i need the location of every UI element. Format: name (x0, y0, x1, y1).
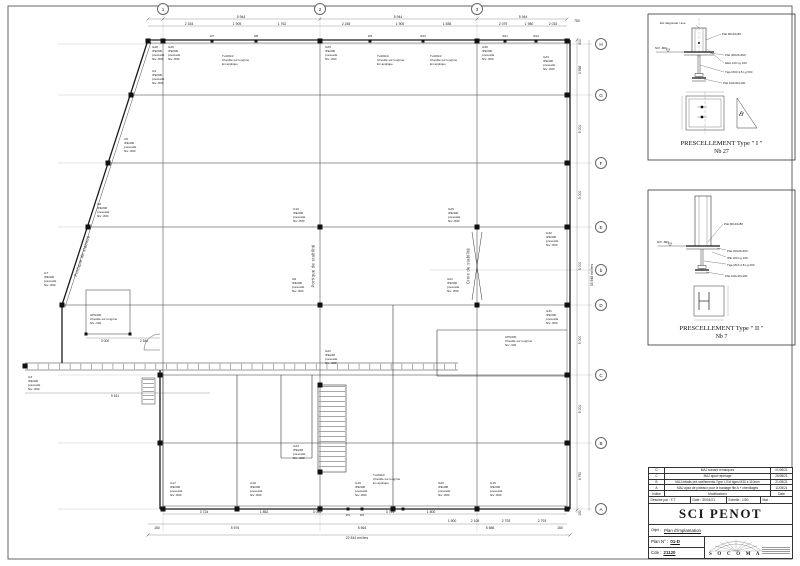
titleblock-bottom: Plan N° :01-D Cde :21120 S O C O M A (649, 537, 792, 558)
revision-table: D MAJ suivant remarques 01/06/21 C MAJ a… (649, 468, 792, 491)
revision-date: 26/05/21 (770, 474, 792, 479)
revision-index: D (649, 468, 665, 473)
socoma-logo: S O C O M A (705, 537, 792, 558)
detail-type1-drawing (648, 14, 795, 160)
detail1-count: Nb 27 (650, 149, 793, 155)
dimension-lines (25, 19, 589, 535)
revision-date: 01/06/21 (770, 468, 792, 473)
object-label: Objet : (651, 528, 661, 532)
drawn-by: Dessiné par : F.T (649, 497, 691, 503)
drawing-material: Mat : . (761, 497, 792, 503)
stairs-outline (318, 385, 346, 472)
detail1-title: PRESCELLEMENT Type " I " (650, 140, 793, 147)
revision-header-indice: Indice (649, 491, 665, 496)
upn-zone-west (86, 290, 130, 334)
title-block: D MAJ suivant remarques 01/06/21 C MAJ a… (648, 467, 793, 559)
revision-description: MAJ détails pré-scellements Type I, Ext … (665, 480, 770, 485)
revision-header-date: Date (770, 491, 792, 496)
drawing-sheet: 123HGFEbDCBA 5 9445 9445 9442 3341 9051 … (0, 0, 800, 566)
revision-description: MAJ suivant remarques (665, 468, 770, 473)
revision-date: 11/05/21 (770, 485, 792, 490)
revision-index: A (649, 485, 665, 490)
company-address-block (762, 546, 790, 555)
revision-index: C (649, 474, 665, 479)
detail2-title: PRESCELLEMENT Type " II " (650, 325, 793, 332)
revision-date: 21/05/21 (770, 480, 792, 485)
detail2-count: Nb 7 (650, 334, 793, 340)
door-swing (144, 334, 160, 350)
revision-index: B (649, 480, 665, 485)
detail-type2-drawing (648, 190, 795, 345)
object-value: Plan d'implantation (664, 528, 701, 533)
plan-number-cell: Plan N° :01-D Cde :21120 (649, 537, 705, 558)
revision-description: MAJ ajout repérage (665, 474, 770, 479)
order-value: 21120 (664, 550, 676, 555)
project-title: SCI PENOT (649, 504, 792, 525)
column-markers (23, 39, 570, 512)
revision-description: MAJ ajout de poteaux pour le bardage fil… (665, 485, 770, 490)
grid-lines (58, 14, 592, 532)
dimension-ticks (147, 18, 579, 537)
drawing-info-row: Dessiné par : F.T Date : 30/04/21 Echell… (649, 497, 792, 504)
plan-number-value: 01-D (670, 539, 680, 544)
beam-lines (62, 44, 567, 509)
building-outline (62, 40, 570, 509)
partition-walls (237, 305, 567, 509)
revision-header-modifications: Modifications (665, 491, 770, 496)
drawing-date: Date : 30/04/21 (691, 497, 727, 503)
socoma-fan-icon (707, 539, 765, 552)
socoma-wordmark: S O C O M A (709, 552, 762, 557)
building-outline-inner (65, 42, 567, 506)
post-markers (85, 40, 538, 511)
drawing-scale: Echelle : 1/50 (727, 497, 761, 503)
order-label: Cde : (651, 550, 662, 555)
object-row: Objet : Plan d'implantation (649, 525, 792, 537)
plan-number-label: Plan N° : (651, 539, 668, 544)
